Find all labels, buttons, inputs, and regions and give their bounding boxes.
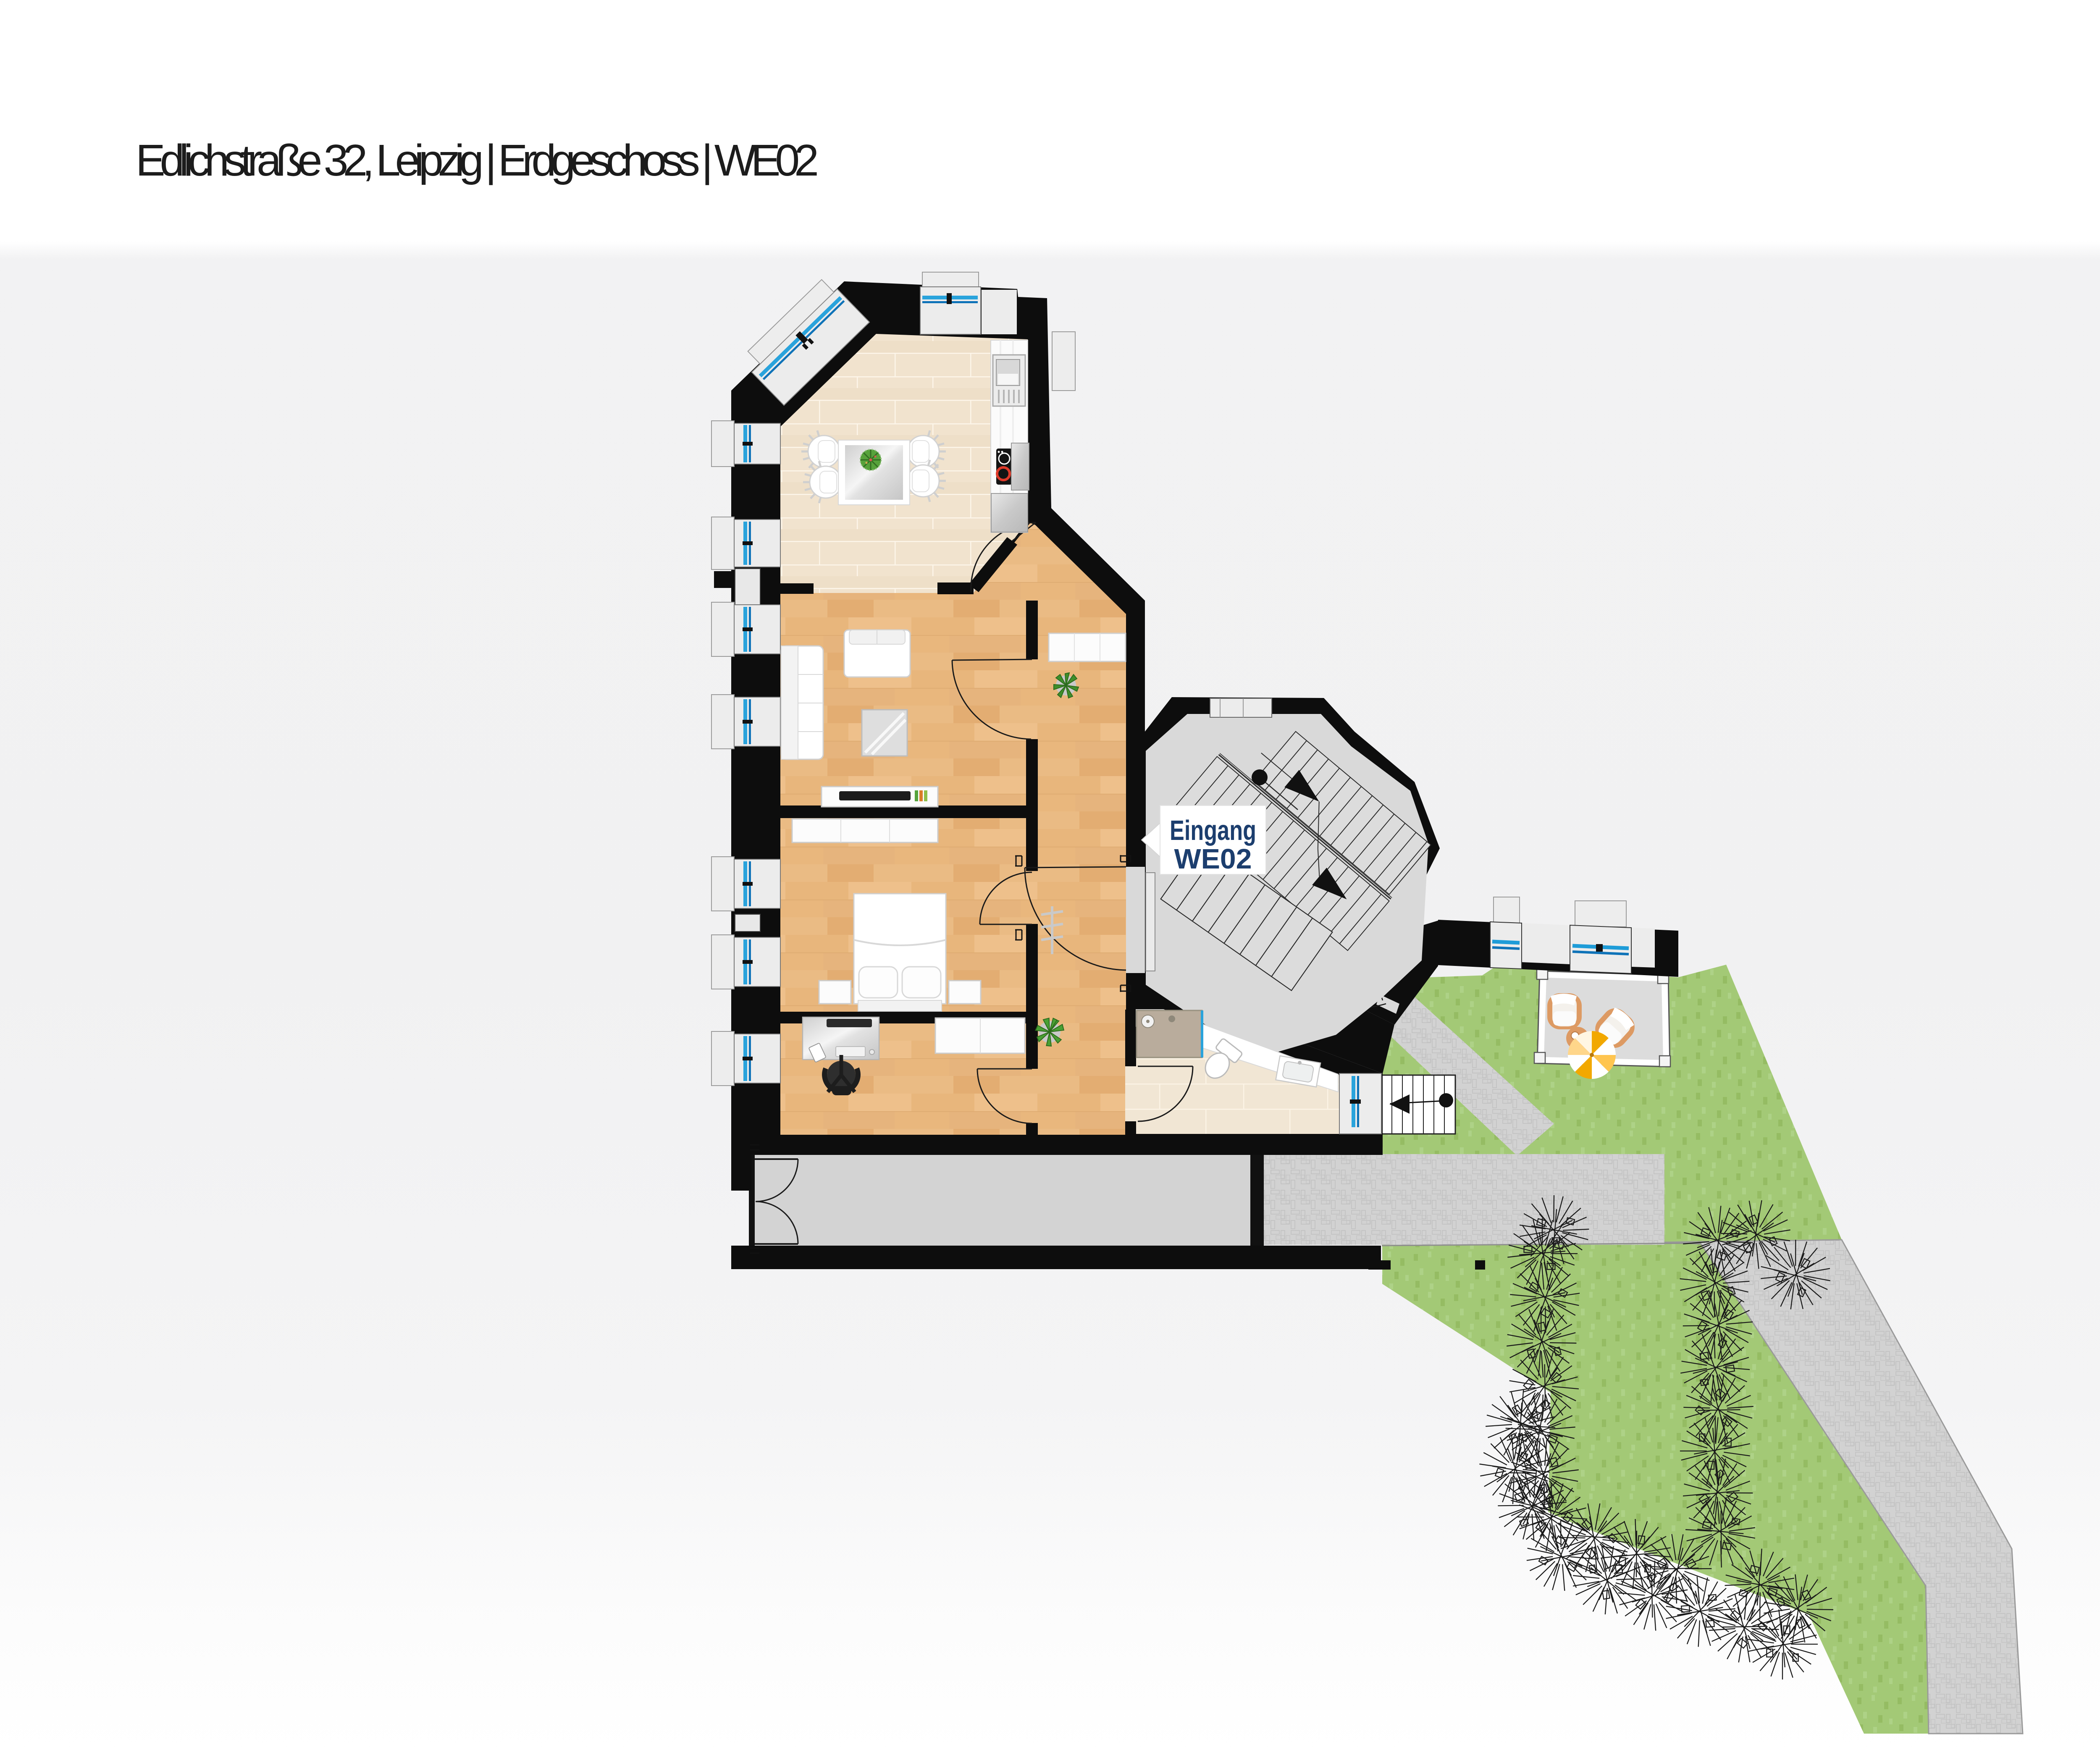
svg-text:WE02: WE02 [1174, 843, 1252, 875]
svg-text:Edlichstraße 32, Leipzig | Erd: Edlichstraße 32, Leipzig | Erdgeschoss |… [136, 136, 819, 185]
svg-text:Eingang: Eingang [1170, 815, 1256, 846]
